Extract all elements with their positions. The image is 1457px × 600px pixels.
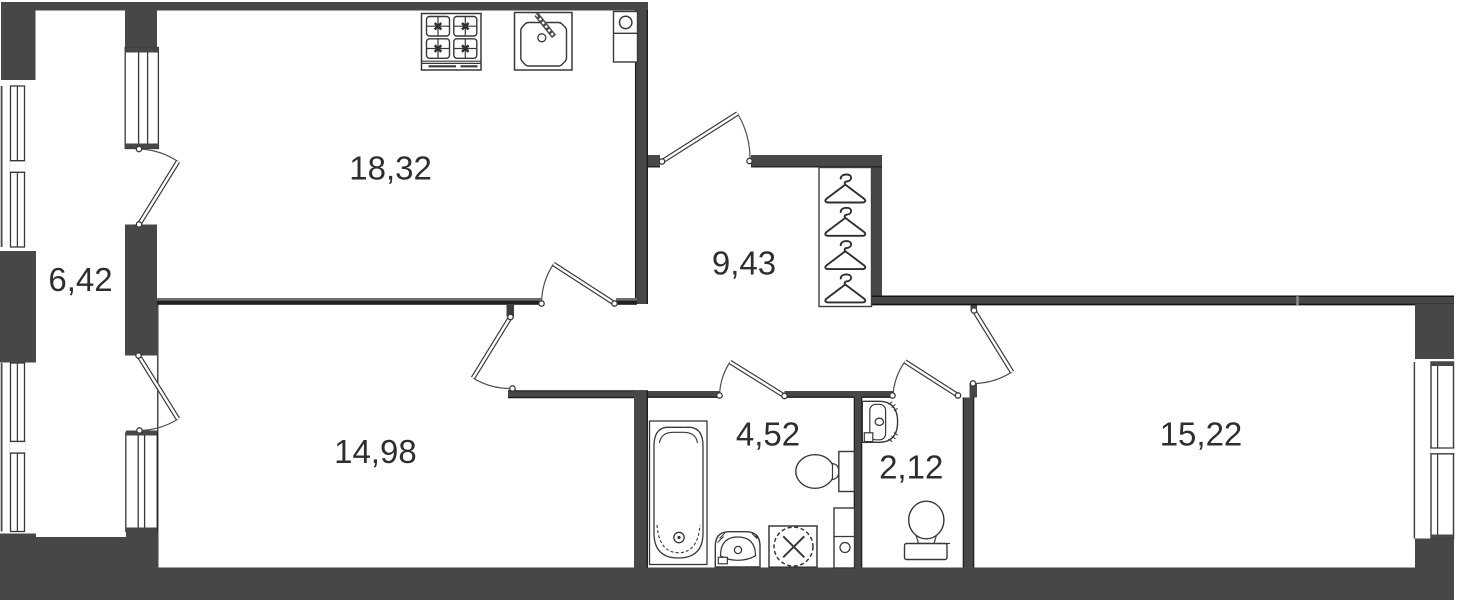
svg-text:14,98: 14,98 [334, 433, 417, 470]
svg-text:2,12: 2,12 [879, 449, 943, 486]
svg-text:18,32: 18,32 [349, 149, 432, 186]
svg-text:15,22: 15,22 [1160, 416, 1243, 453]
svg-text:9,43: 9,43 [712, 244, 776, 281]
svg-text:4,52: 4,52 [736, 415, 800, 452]
svg-text:6,42: 6,42 [48, 261, 112, 298]
